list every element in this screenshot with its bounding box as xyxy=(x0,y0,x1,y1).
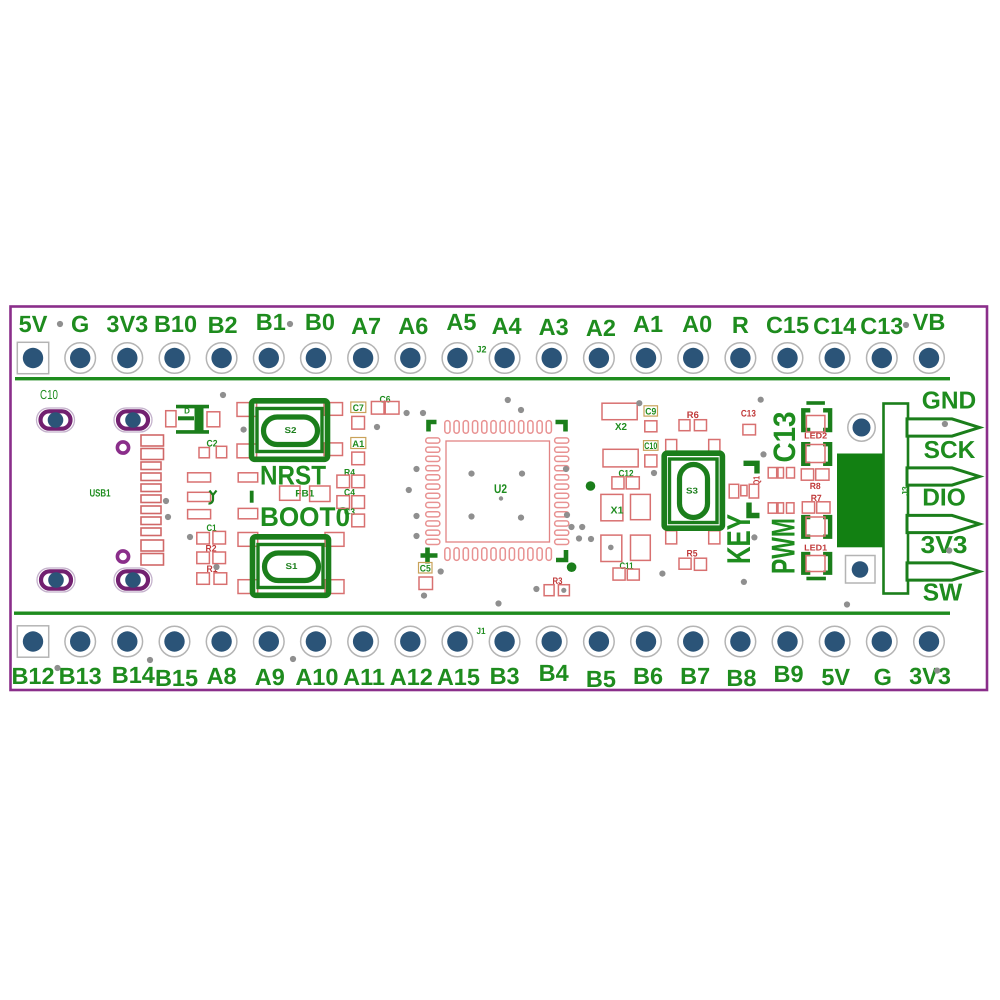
svg-text:A11: A11 xyxy=(343,664,385,690)
svg-text:GND: GND xyxy=(922,388,976,415)
svg-text:3V3: 3V3 xyxy=(909,663,951,689)
svg-text:B3: B3 xyxy=(490,663,520,689)
svg-text:5V: 5V xyxy=(19,311,48,337)
svg-text:C13: C13 xyxy=(767,412,802,463)
svg-text:A3: A3 xyxy=(539,314,569,340)
svg-text:R: R xyxy=(732,312,749,338)
svg-text:A1: A1 xyxy=(633,311,663,337)
svg-text:A5: A5 xyxy=(446,309,476,335)
svg-text:B8: B8 xyxy=(726,665,756,691)
svg-text:5V: 5V xyxy=(821,664,850,690)
svg-text:A15: A15 xyxy=(437,664,480,690)
svg-text:B7: B7 xyxy=(680,663,710,689)
svg-text:DIO: DIO xyxy=(922,485,966,512)
svg-text:B4: B4 xyxy=(539,660,569,686)
svg-text:B13: B13 xyxy=(59,663,102,689)
svg-text:A10: A10 xyxy=(295,664,338,690)
svg-text:A1: A1 xyxy=(352,439,365,450)
svg-text:FB1: FB1 xyxy=(295,489,315,500)
svg-text:A0: A0 xyxy=(682,311,712,337)
svg-text:USB1: USB1 xyxy=(90,488,111,500)
svg-text:B6: B6 xyxy=(633,663,663,689)
svg-text:B1: B1 xyxy=(256,309,286,335)
svg-text:J2: J2 xyxy=(477,345,487,356)
svg-text:B5: B5 xyxy=(586,666,616,692)
svg-text:B14: B14 xyxy=(112,662,155,688)
svg-text:G: G xyxy=(874,664,892,690)
svg-text:A12: A12 xyxy=(390,664,433,690)
svg-text:B15: B15 xyxy=(155,665,198,691)
svg-text:B9: B9 xyxy=(773,661,803,687)
svg-text:KEY: KEY xyxy=(720,514,757,564)
svg-text:G: G xyxy=(71,311,89,337)
svg-text:X1: X1 xyxy=(611,506,624,517)
svg-text:C3: C3 xyxy=(344,507,355,518)
svg-text:A4: A4 xyxy=(492,313,522,339)
svg-text:C7: C7 xyxy=(353,403,364,414)
svg-text:C14: C14 xyxy=(813,313,856,339)
svg-text:U2: U2 xyxy=(494,482,507,496)
svg-text:S3: S3 xyxy=(686,486,698,496)
svg-text:B10: B10 xyxy=(154,311,197,337)
svg-text:C5: C5 xyxy=(420,564,432,575)
svg-text:S1: S1 xyxy=(286,561,298,571)
svg-text:C13: C13 xyxy=(860,313,903,339)
svg-text:3V3: 3V3 xyxy=(106,311,148,337)
svg-text:C13: C13 xyxy=(741,409,756,420)
svg-text:A2: A2 xyxy=(586,315,616,341)
svg-text:3V3: 3V3 xyxy=(921,532,968,559)
svg-text:VB: VB xyxy=(913,309,946,335)
svg-text:R8: R8 xyxy=(810,481,821,491)
svg-text:LED1: LED1 xyxy=(804,543,827,553)
svg-text:B12: B12 xyxy=(11,663,54,689)
svg-text:S2: S2 xyxy=(285,425,297,435)
svg-text:J1: J1 xyxy=(477,626,486,636)
svg-text:SW: SW xyxy=(923,580,963,607)
svg-text:A9: A9 xyxy=(255,664,285,690)
svg-text:X2: X2 xyxy=(615,422,627,433)
svg-text:C15: C15 xyxy=(766,312,809,338)
svg-text:D: D xyxy=(184,407,190,416)
svg-text:B2: B2 xyxy=(208,312,238,338)
svg-text:A6: A6 xyxy=(398,313,428,339)
svg-text:B0: B0 xyxy=(305,309,335,335)
svg-text:R2: R2 xyxy=(206,544,217,555)
svg-text:C10: C10 xyxy=(40,387,58,402)
svg-text:A7: A7 xyxy=(351,313,381,339)
svg-text:C10: C10 xyxy=(644,441,657,452)
svg-text:C9: C9 xyxy=(645,407,656,418)
svg-text:J3: J3 xyxy=(900,486,910,496)
svg-text:SCK: SCK xyxy=(924,437,976,464)
svg-text:PWM: PWM xyxy=(765,518,802,574)
svg-text:LED2: LED2 xyxy=(804,431,827,441)
svg-text:A8: A8 xyxy=(207,663,237,689)
